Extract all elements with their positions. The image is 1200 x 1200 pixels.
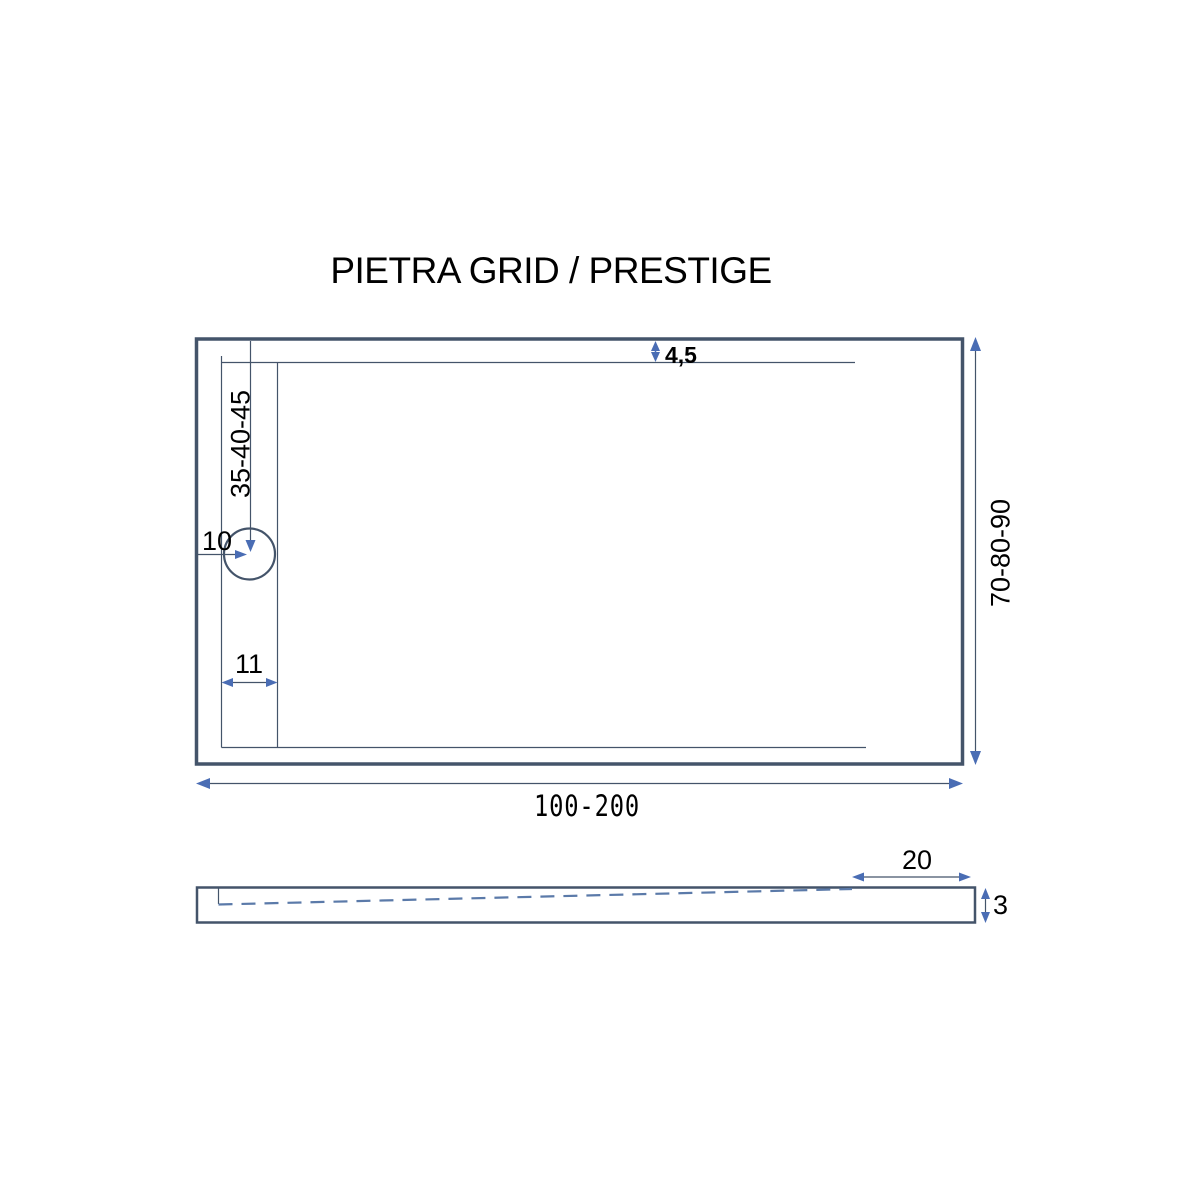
dim-label-length-range: 100-200 bbox=[534, 792, 640, 821]
drawing-title: PIETRA GRID / PRESTIGE bbox=[300, 252, 802, 289]
drain-channel-lines bbox=[222, 356, 867, 748]
slope-dashed-line bbox=[219, 889, 853, 905]
side-profile-outline bbox=[197, 888, 975, 923]
dim-label-edge-thickness: 3 bbox=[993, 892, 1008, 919]
dim-label-drain-center-distance: 35-40-45 bbox=[228, 390, 255, 498]
dim-label-flat-end-length: 20 bbox=[902, 847, 932, 874]
dimension-arrowheads bbox=[196, 337, 990, 923]
drawing-linework bbox=[0, 0, 1200, 1200]
technical-drawing-page: PIETRA GRID / PRESTIGE 4,5 35-40-45 10 1… bbox=[0, 0, 1200, 1200]
dim-label-drain-diameter: 10 bbox=[202, 528, 232, 555]
dim-label-drain-strip-width: 11 bbox=[235, 651, 263, 678]
tray-outline bbox=[197, 339, 963, 764]
dimension-lines bbox=[197, 341, 986, 919]
dim-label-rim-offset: 4,5 bbox=[665, 344, 697, 367]
dim-label-width-range: 70-80-90 bbox=[988, 499, 1015, 607]
